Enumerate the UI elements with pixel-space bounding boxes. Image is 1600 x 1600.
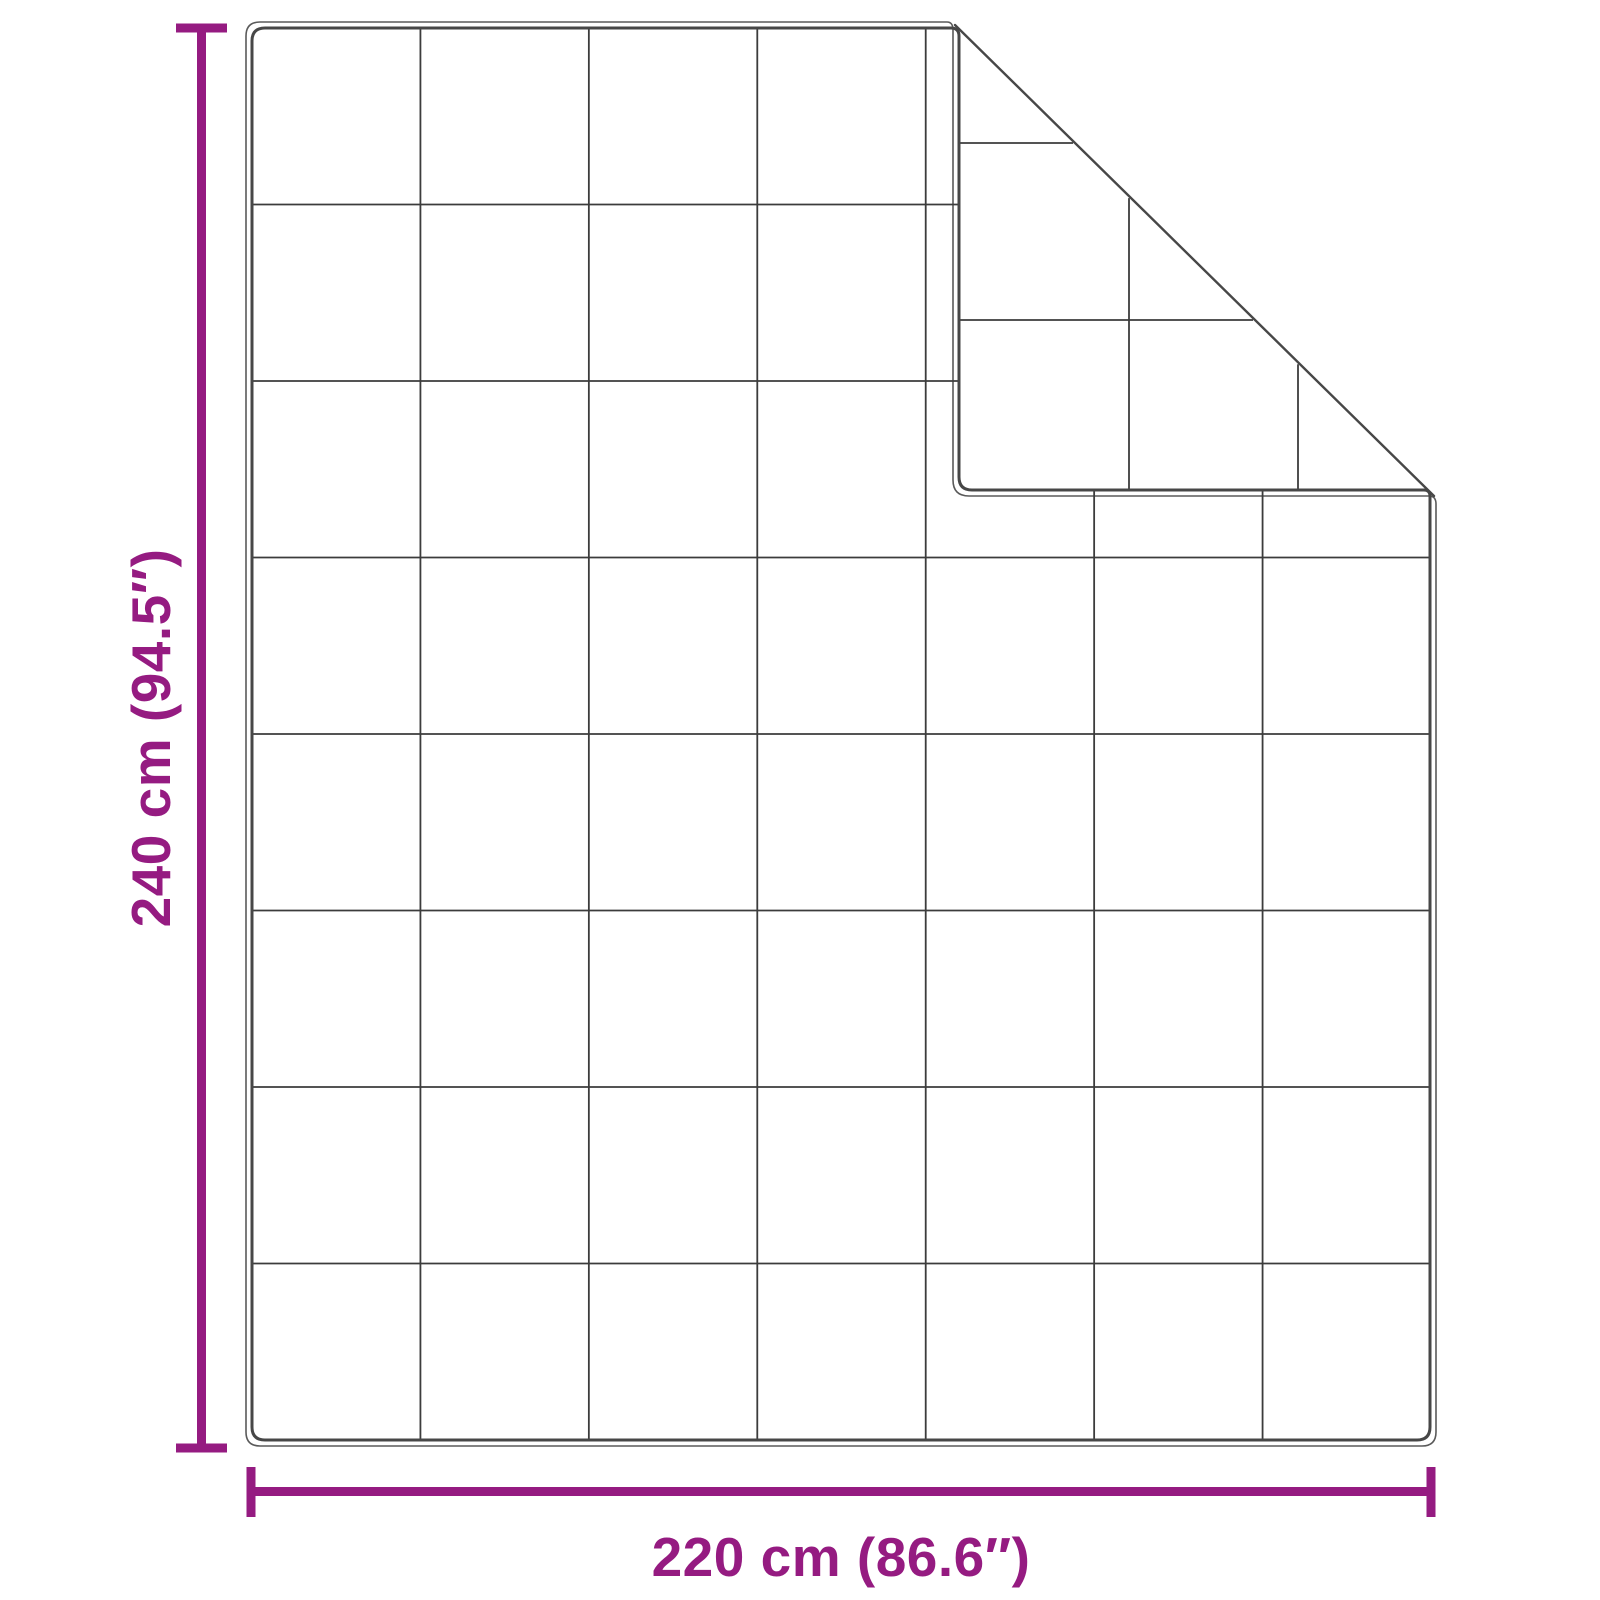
dimension-diagram-canvas: 240 cm (94.5″) 220 cm (86.6″) bbox=[0, 0, 1600, 1600]
height-dimension-label: 240 cm (94.5″) bbox=[120, 549, 182, 928]
height-dimension: 240 cm (94.5″) bbox=[120, 28, 227, 1448]
blanket bbox=[246, 22, 1436, 1446]
fold-crease-line bbox=[955, 25, 1434, 496]
width-dimension: 220 cm (86.6″) bbox=[251, 1467, 1431, 1588]
dimension-diagram: 240 cm (94.5″) 220 cm (86.6″) bbox=[0, 0, 1600, 1600]
width-dimension-label: 220 cm (86.6″) bbox=[652, 1526, 1031, 1588]
